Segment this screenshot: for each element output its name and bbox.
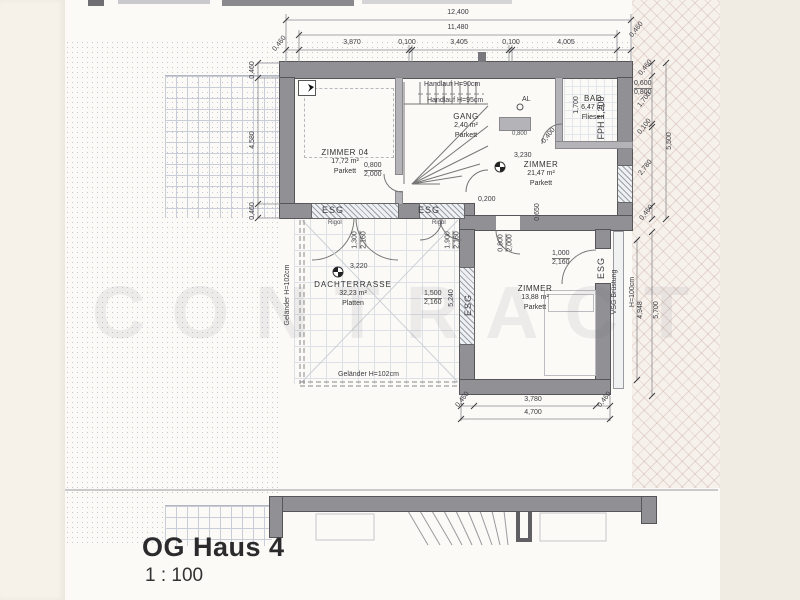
floor-plan-scan: ZIMMER 04 17,72 m² Parkett GANG 2,40 m² …	[0, 0, 800, 600]
page-title: OG Haus 4	[142, 532, 285, 563]
handrail-label-1: Handlauf H=90cm	[424, 81, 480, 89]
room-floor: Fliesen	[568, 113, 618, 123]
window-width: 1,900	[445, 231, 453, 249]
room-floor: Parkett	[506, 179, 576, 189]
door-width: 0,800	[364, 162, 382, 170]
lower-plan-wall-right	[642, 497, 656, 523]
dim-top-inner: 11,480	[448, 24, 469, 32]
dim-top-seg: 0,100	[502, 39, 520, 47]
dim-bottom-total: 4,700	[524, 409, 542, 417]
rigol-label-1: Rigol	[328, 220, 342, 227]
al-label: AL	[522, 96, 531, 104]
room-name: GANG	[438, 112, 494, 121]
rigol-label-2: Rigol	[432, 220, 446, 227]
dim-right-total: 5,500	[666, 132, 674, 150]
dim-top-seg: 3,405	[450, 39, 468, 47]
door-size-zimmer-sued: 0,8002,000	[490, 234, 515, 252]
door-height: 2,000	[364, 170, 382, 179]
dim-top-seg: 3,870	[343, 39, 361, 47]
window-height: 2,160	[360, 231, 369, 249]
door-size-zimmer04: 0,800 2,000	[364, 162, 382, 179]
window-height: 2,160	[453, 231, 462, 249]
window-size-terrasse-2: 1,9002,160	[437, 231, 462, 249]
door-width: 1,000	[552, 250, 570, 258]
level-zimmer-og: 3,230	[514, 152, 532, 160]
dim-0200: 0,200	[478, 196, 496, 204]
window-width: 0,600	[634, 80, 652, 88]
dim-left-seg: 4,580	[249, 131, 257, 149]
room-label-zimmer-og: ZIMMER 21,47 m² Parkett	[506, 160, 576, 189]
handrail-label-2: Handlauf H=95cm	[427, 97, 483, 105]
dim-bottom-seg: 3,780	[524, 396, 542, 404]
door-height: 2,160	[552, 258, 570, 267]
window-size-terrasse-1: 1,3002,160	[344, 231, 369, 249]
lower-plan-wall	[282, 497, 656, 511]
door-height: 2,000	[506, 234, 515, 252]
room-label-gang: GANG 2,40 m² Parkett	[438, 112, 494, 141]
dim-0800: 0,800	[512, 131, 527, 138]
window-width: 1,300	[352, 231, 360, 249]
room-area: 2,40 m²	[438, 121, 494, 131]
dim-top-total: 12,400	[447, 9, 468, 17]
dim-0650: 0,650	[534, 203, 542, 221]
room-name: ZIMMER 04	[300, 148, 390, 157]
room-floor: Parkett	[438, 131, 494, 141]
watermark: CONTRACT	[92, 270, 715, 355]
door-size-balkon: 1,000 2,160	[552, 250, 570, 267]
dim-top-seg: 0,100	[398, 39, 416, 47]
lower-plan-wall-left	[270, 497, 282, 537]
esg-label-2: ESG	[418, 206, 440, 214]
room-name: ZIMMER	[506, 160, 576, 169]
fph-label: FPH 1,200	[597, 96, 605, 139]
room-area: 21,47 m²	[506, 169, 576, 179]
page-scale: 1 : 100	[145, 565, 203, 587]
dim-bad-tiefe: 1,700	[573, 96, 581, 114]
dim-left-seg: 0,460	[249, 61, 257, 79]
railing-label-bottom: Geländer H=102cm	[338, 371, 399, 379]
esg-label-1: ESG	[322, 206, 344, 214]
door-width: 0,800	[498, 234, 506, 252]
dim-top-seg: 4,005	[557, 39, 575, 47]
dim-left-seg: 0,460	[249, 202, 257, 220]
